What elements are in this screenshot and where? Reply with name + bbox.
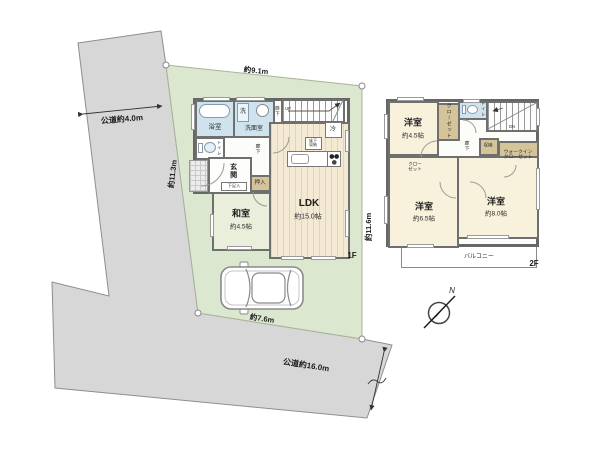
shoe-box-label: 下足入 bbox=[228, 184, 241, 188]
toilet-1f-label: トイレ bbox=[217, 140, 221, 156]
japanese-room-size: 約4.5帖 bbox=[230, 225, 252, 232]
floor2-label: 2F bbox=[529, 260, 538, 268]
bedroom65-size: 約6.5帖 bbox=[413, 217, 435, 224]
hall-2f-label: 廊下 bbox=[463, 140, 468, 152]
floor-storage-line2: 収納 bbox=[309, 142, 317, 147]
washroom-label: 洗面室 bbox=[245, 126, 263, 132]
floor1-label: 1F bbox=[347, 252, 356, 260]
oshiire-label: 押入 bbox=[254, 181, 265, 187]
closet65-line2: ゼット bbox=[408, 166, 422, 171]
bedroom45-size: 約4.5帖 bbox=[402, 134, 424, 141]
wic-label: ウォークイン クローゼット bbox=[504, 150, 533, 160]
door-arc-bedroom80 bbox=[470, 182, 486, 198]
storage-2f-label: 収納 bbox=[484, 144, 493, 149]
stairs-up-arrow bbox=[288, 103, 340, 111]
hall-upper-label: 廊下 bbox=[275, 106, 280, 117]
fridge-label: 冷 bbox=[330, 127, 336, 133]
hall-mid-label: 廊下 bbox=[254, 143, 259, 155]
dim-right-label: 約11.6m bbox=[365, 213, 373, 241]
washer-label: 洗 bbox=[240, 109, 246, 115]
door-arc-ldk bbox=[273, 137, 289, 153]
ldk-size: 約15.0帖 bbox=[294, 213, 322, 220]
stairs-down-label: DN bbox=[509, 125, 515, 129]
door-arc-entrance bbox=[201, 163, 224, 186]
wic-line2: クローゼット bbox=[504, 155, 533, 160]
bedroom45-label: 洋室 bbox=[404, 118, 422, 127]
door-arc-toilet2f bbox=[463, 120, 476, 133]
north-label: N bbox=[449, 287, 455, 295]
closet45-label: クローゼット bbox=[445, 103, 450, 139]
ldk-label: LDK bbox=[299, 199, 320, 210]
toilet-2f-label: トイレ bbox=[481, 101, 485, 117]
bedroom80-label: 洋室 bbox=[487, 197, 505, 206]
stairs-up-label: UP bbox=[285, 107, 291, 111]
doors-overlay bbox=[0, 0, 600, 450]
stairs-1f-diagonal bbox=[333, 100, 343, 121]
stairs-down-arrow bbox=[493, 108, 503, 111]
japanese-room-label: 和室 bbox=[232, 209, 250, 218]
door-arc-japanese-room bbox=[253, 192, 267, 206]
entrance-label: 玄関 bbox=[229, 163, 236, 179]
floor-storage-label: 床下 収納 bbox=[309, 139, 317, 147]
bedroom65-label: 洋室 bbox=[415, 202, 433, 211]
closet65-label: クロー ゼット bbox=[408, 162, 422, 171]
bathroom-label: 浴室 bbox=[209, 125, 222, 132]
door-arc-wic bbox=[504, 165, 516, 177]
door-arc-bedroom65 bbox=[440, 182, 456, 198]
floorplan-canvas: 公道約4.0m 約9.1m 約11.3m 約11.6m 約7.6m 公道約16.… bbox=[0, 0, 600, 450]
door-arc-bedroom45 bbox=[421, 141, 437, 157]
balcony-label: バルコニー bbox=[464, 254, 494, 260]
bedroom80-size: 約8.0帖 bbox=[485, 212, 507, 219]
